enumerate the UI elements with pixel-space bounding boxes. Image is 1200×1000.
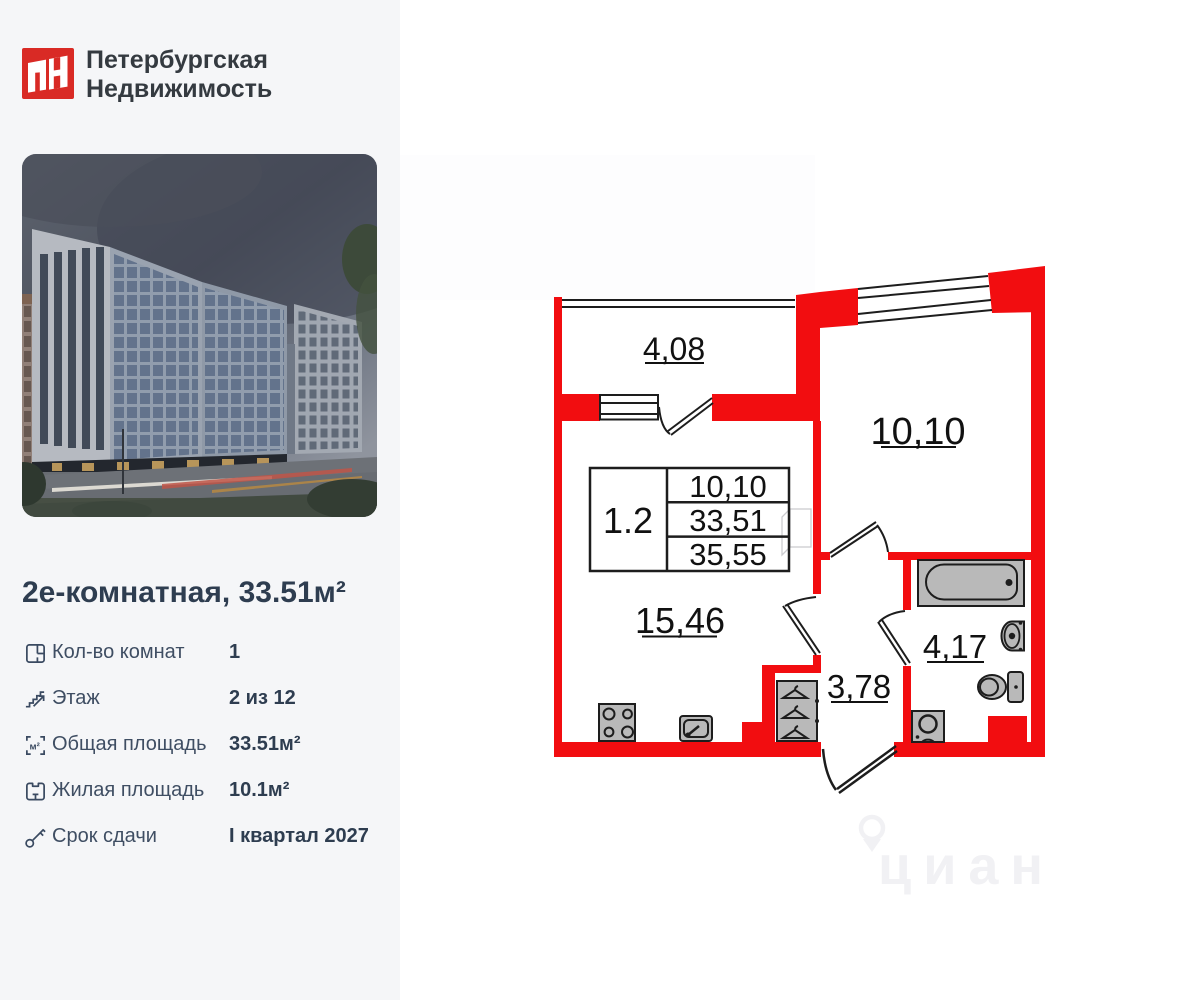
svg-text:1.2: 1.2 (603, 500, 653, 541)
svg-text:35,55: 35,55 (689, 537, 767, 572)
svg-text:33,51: 33,51 (689, 503, 767, 538)
svg-text:3,78: 3,78 (827, 668, 891, 705)
svg-text:10,10: 10,10 (689, 469, 767, 504)
svg-text:15,46: 15,46 (635, 600, 725, 641)
svg-text:4,17: 4,17 (923, 628, 987, 665)
svg-text:циан: циан (878, 836, 1055, 896)
svg-text:4,08: 4,08 (643, 331, 705, 367)
